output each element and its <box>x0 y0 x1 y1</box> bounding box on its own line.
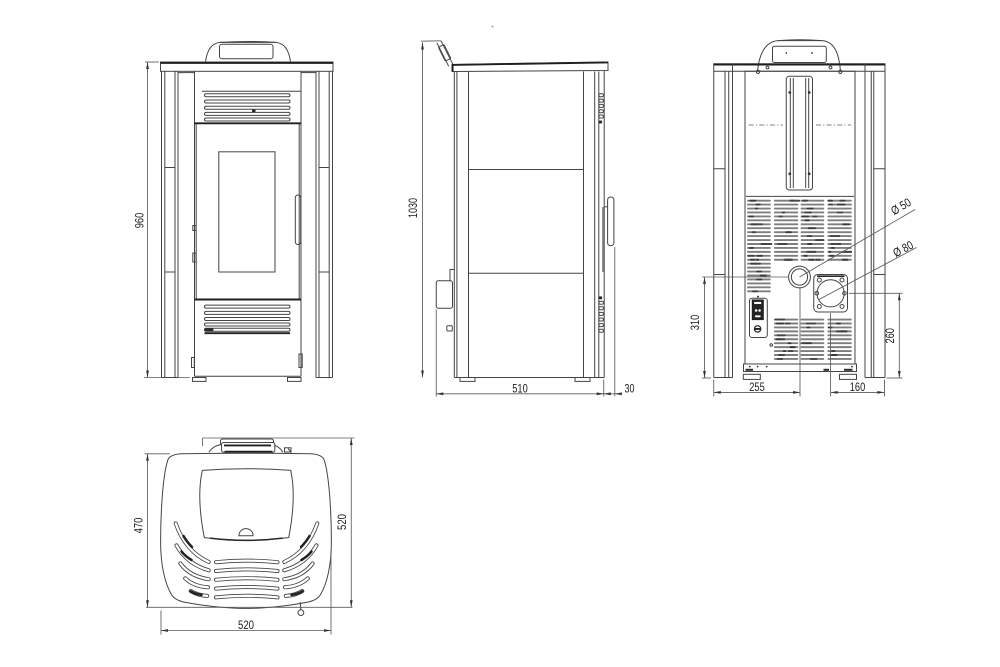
svg-text:520: 520 <box>335 514 349 530</box>
svg-text:470: 470 <box>131 517 145 533</box>
svg-text:510: 510 <box>512 381 528 395</box>
svg-text:960: 960 <box>133 213 147 229</box>
svg-text:255: 255 <box>749 380 765 394</box>
svg-text:260: 260 <box>883 328 897 344</box>
svg-text:1030: 1030 <box>406 198 420 218</box>
svg-text:310: 310 <box>688 315 702 331</box>
svg-text:30: 30 <box>625 381 635 395</box>
svg-text:160: 160 <box>850 380 866 394</box>
svg-text:520: 520 <box>238 618 254 632</box>
